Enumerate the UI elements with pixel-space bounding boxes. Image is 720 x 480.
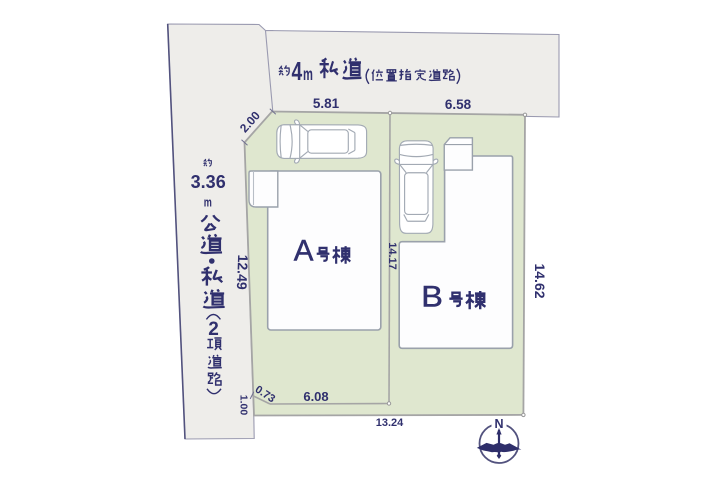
svg-text:6.58: 6.58 bbox=[445, 97, 472, 112]
svg-text:14.62: 14.62 bbox=[532, 263, 548, 298]
svg-text:1.00: 1.00 bbox=[237, 395, 249, 416]
svg-text:5.81: 5.81 bbox=[313, 96, 340, 111]
svg-text:14.17: 14.17 bbox=[386, 242, 398, 270]
svg-text:A: A bbox=[294, 235, 314, 268]
svg-text:12.49: 12.49 bbox=[234, 254, 251, 290]
svg-text:B: B bbox=[421, 280, 443, 313]
svg-text:2: 2 bbox=[208, 319, 219, 340]
svg-text:13.24: 13.24 bbox=[376, 417, 404, 429]
svg-text:3.36: 3.36 bbox=[191, 172, 226, 192]
svg-text:m: m bbox=[204, 196, 212, 210]
svg-text:4: 4 bbox=[291, 56, 302, 86]
svg-text:6.08: 6.08 bbox=[303, 389, 328, 404]
svg-text:m: m bbox=[303, 64, 313, 84]
